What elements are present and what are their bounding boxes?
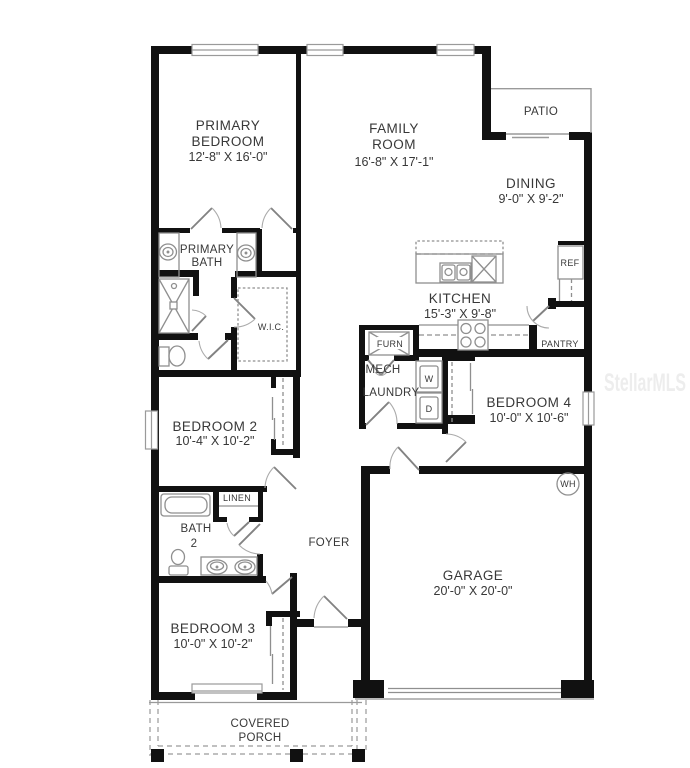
svg-text:20'-0" X 20'-0": 20'-0" X 20'-0" [434,584,513,598]
svg-text:12'-8" X 16'-0": 12'-8" X 16'-0" [189,150,268,164]
svg-text:REF: REF [561,258,580,268]
svg-text:W.I.C.: W.I.C. [258,322,284,332]
svg-text:PRIMARY: PRIMARY [180,244,234,256]
svg-text:FOYER: FOYER [308,537,349,549]
svg-text:LINEN: LINEN [223,493,251,503]
svg-text:BATH: BATH [191,257,222,269]
svg-text:FAMILY: FAMILY [369,121,419,136]
svg-text:COVERED: COVERED [231,718,290,730]
svg-text:W: W [425,374,434,384]
svg-text:10'-0" X 10'-6": 10'-0" X 10'-6" [490,411,569,425]
svg-text:BEDROOM 3: BEDROOM 3 [170,621,255,636]
svg-text:15'-3" X 9'-8": 15'-3" X 9'-8" [424,307,496,321]
svg-text:PORCH: PORCH [238,732,281,744]
svg-text:PANTRY: PANTRY [541,339,578,349]
svg-text:BEDROOM 4: BEDROOM 4 [486,395,571,410]
svg-text:9'-0" X 9'-2": 9'-0" X 9'-2" [498,192,563,206]
svg-text:2: 2 [191,538,198,550]
svg-text:FURN: FURN [377,339,403,349]
svg-text:StellarMLS: StellarMLS [604,369,686,397]
svg-text:ROOM: ROOM [372,137,416,152]
svg-text:PRIMARY: PRIMARY [196,118,260,133]
svg-text:PATIO: PATIO [524,106,558,118]
svg-text:16'-8" X 17'-1": 16'-8" X 17'-1" [355,155,434,169]
svg-text:GARAGE: GARAGE [443,568,503,583]
svg-text:LAUNDRY: LAUNDRY [363,387,420,399]
svg-text:DINING: DINING [506,176,556,191]
svg-text:KITCHEN: KITCHEN [429,291,491,306]
svg-text:BATH: BATH [180,523,211,535]
svg-text:WH: WH [560,479,576,489]
svg-text:BEDROOM: BEDROOM [192,134,265,149]
svg-text:D: D [426,404,433,414]
svg-text:10'-4" X 10'-2": 10'-4" X 10'-2" [176,434,255,448]
svg-text:MECH: MECH [365,364,400,376]
svg-text:10'-0" X 10'-2": 10'-0" X 10'-2" [174,637,253,651]
svg-text:BEDROOM 2: BEDROOM 2 [172,419,257,434]
